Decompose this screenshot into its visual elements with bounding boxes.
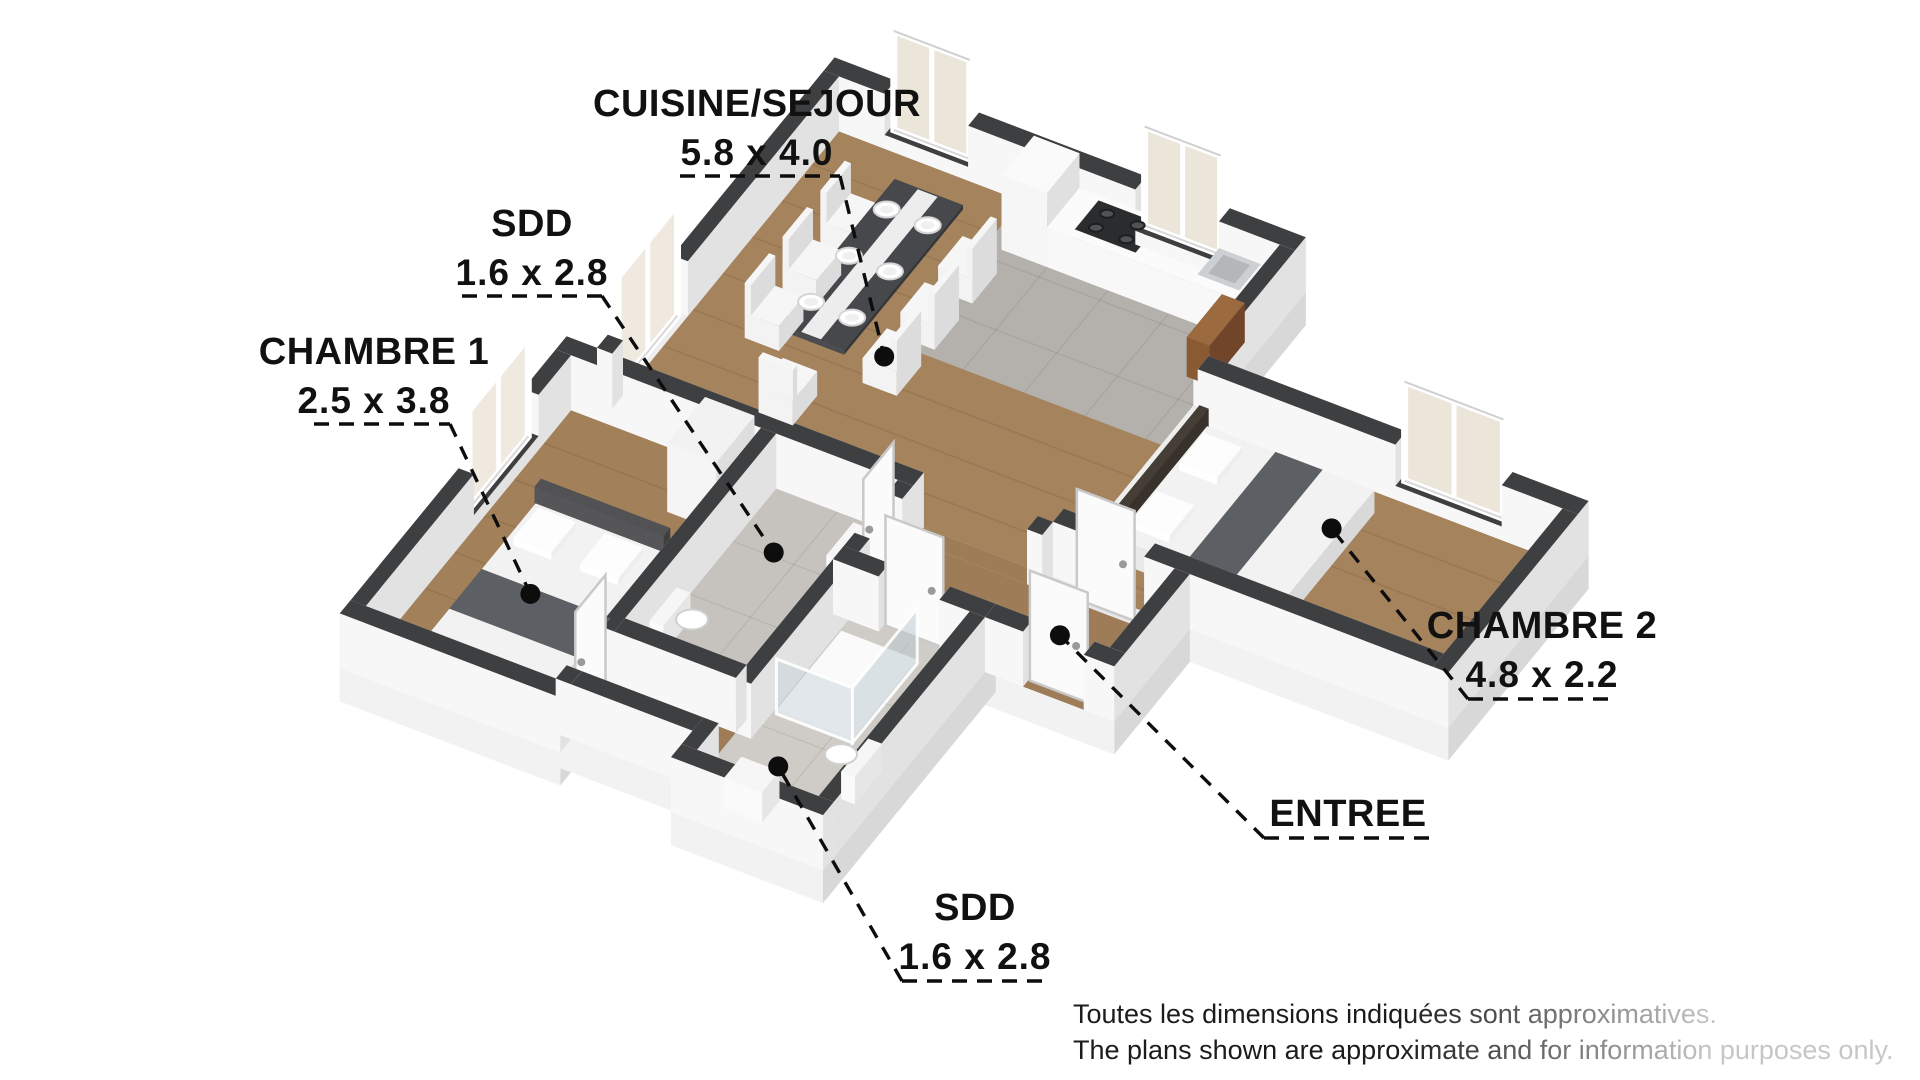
floorplan-stage: CUISINE/SEJOUR 5.8 x 4.0 SDD 1.6 x 2.8 C… xyxy=(0,0,1920,1080)
room-name: ENTREE xyxy=(1269,792,1426,837)
room-label-cuisine-sejour: CUISINE/SEJOUR 5.8 x 4.0 xyxy=(593,82,921,174)
room-dimensions: 1.6 x 2.8 xyxy=(898,935,1051,979)
room-label-entree: ENTREE xyxy=(1269,792,1426,837)
room-dimensions: 4.8 x 2.2 xyxy=(1427,653,1657,697)
room-name: CHAMBRE 1 xyxy=(259,330,489,375)
room-label-chambre-1: CHAMBRE 1 2.5 x 3.8 xyxy=(259,330,489,422)
room-name: CUISINE/SEJOUR xyxy=(593,82,921,127)
room-label-sdd-top: SDD 1.6 x 2.8 xyxy=(455,202,608,294)
room-label-sdd-bottom: SDD 1.6 x 2.8 xyxy=(898,886,1051,978)
room-name: CHAMBRE 2 xyxy=(1427,604,1657,649)
room-dimensions: 2.5 x 3.8 xyxy=(259,379,489,423)
watermark-fade-overlay xyxy=(1400,980,1920,1080)
room-dimensions: 1.6 x 2.8 xyxy=(455,251,608,295)
room-name: SDD xyxy=(898,886,1051,931)
room-name: SDD xyxy=(455,202,608,247)
room-label-chambre-2: CHAMBRE 2 4.8 x 2.2 xyxy=(1427,604,1657,696)
room-dimensions: 5.8 x 4.0 xyxy=(593,131,921,175)
